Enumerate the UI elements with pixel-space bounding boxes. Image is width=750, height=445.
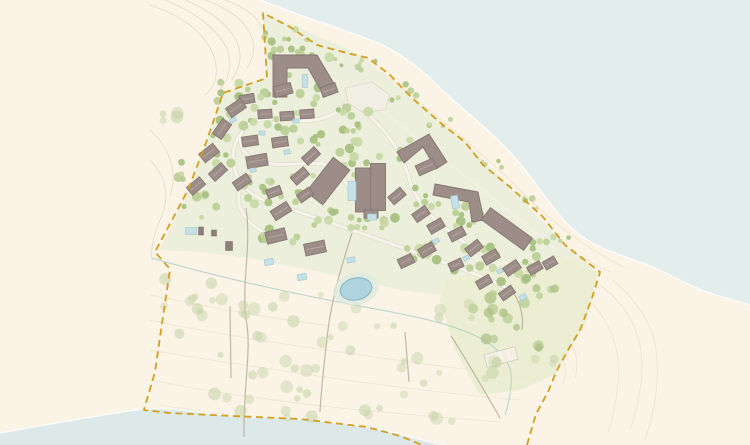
tree: [329, 208, 337, 216]
tree: [238, 309, 247, 318]
villa-roof-ridge: [260, 114, 270, 115]
tree: [345, 345, 355, 355]
tree: [464, 299, 475, 310]
tree: [413, 92, 419, 98]
tree: [532, 252, 541, 261]
tree: [265, 178, 271, 184]
tree: [313, 134, 319, 140]
tree: [289, 238, 296, 245]
tree: [297, 138, 304, 145]
tree: [250, 199, 259, 208]
swimming-pool: [347, 257, 356, 263]
tree: [292, 198, 299, 205]
tree: [536, 292, 543, 299]
tree: [311, 222, 317, 228]
tree: [160, 110, 167, 117]
tree: [268, 37, 276, 45]
tree: [313, 94, 321, 102]
tree: [359, 404, 371, 416]
tree: [459, 212, 465, 218]
tree: [376, 153, 383, 160]
tree: [363, 107, 373, 117]
tree: [513, 324, 520, 331]
tree: [475, 261, 484, 270]
swimming-pool: [293, 119, 299, 123]
tree: [566, 235, 571, 240]
tree: [279, 291, 290, 302]
tree: [430, 412, 443, 425]
tree: [256, 332, 267, 343]
swimming-pool: [303, 75, 308, 88]
tree: [344, 128, 349, 133]
swimming-pool: [284, 150, 291, 155]
tree: [282, 37, 287, 42]
tree: [296, 89, 305, 98]
tree: [420, 379, 428, 387]
tree: [160, 117, 167, 124]
tree: [558, 239, 562, 243]
tree: [335, 148, 344, 157]
tree: [551, 284, 559, 292]
tree: [316, 142, 321, 147]
tree: [347, 224, 354, 231]
tree: [496, 277, 505, 286]
hotel-building: [371, 164, 386, 211]
tree: [349, 152, 359, 162]
swimming-pool: [259, 131, 265, 135]
tree: [532, 284, 540, 292]
tree: [333, 57, 337, 61]
tree: [466, 264, 474, 272]
tree: [280, 380, 293, 393]
tree: [239, 121, 249, 131]
tree: [188, 294, 197, 303]
villa-roof-ridge: [282, 116, 292, 117]
tree: [286, 37, 291, 42]
tree: [217, 79, 224, 86]
tree: [280, 355, 292, 367]
swimming-pool: [186, 228, 197, 235]
tree: [492, 357, 503, 368]
tree: [300, 364, 313, 377]
tree: [390, 322, 397, 329]
tree: [354, 121, 360, 127]
tree: [413, 201, 419, 207]
tree: [208, 388, 221, 401]
tree: [374, 323, 380, 329]
tree: [171, 111, 184, 124]
tree: [288, 46, 295, 53]
tree: [339, 63, 343, 67]
tree: [496, 159, 500, 163]
tree: [499, 165, 504, 170]
tree: [531, 355, 540, 364]
tree: [427, 122, 432, 127]
tree: [448, 418, 456, 426]
tree: [268, 302, 278, 312]
tree: [432, 255, 442, 265]
tree: [281, 406, 291, 416]
tree: [490, 335, 498, 343]
tree: [529, 195, 536, 202]
tree: [212, 203, 220, 211]
swimming-pool: [348, 182, 356, 201]
tree: [310, 173, 316, 179]
tree: [296, 386, 303, 393]
tree: [202, 192, 209, 199]
tree: [406, 137, 413, 144]
site-plan: [0, 0, 750, 445]
tree: [291, 364, 299, 372]
tree: [328, 334, 334, 340]
tree: [222, 393, 231, 402]
tree: [380, 218, 389, 227]
tree: [294, 395, 300, 401]
tree: [178, 159, 185, 166]
tree: [354, 224, 360, 230]
tree: [396, 95, 401, 100]
swimming-pool: [250, 168, 257, 173]
tree: [209, 297, 216, 304]
tree: [363, 159, 370, 166]
tree: [499, 308, 508, 317]
tree: [274, 123, 282, 131]
tree: [317, 337, 329, 349]
tree: [436, 370, 442, 376]
tree: [357, 218, 362, 223]
tree: [272, 100, 277, 105]
tree: [390, 213, 400, 223]
shed-building: [199, 227, 204, 235]
swimming-pool: [297, 273, 307, 280]
tree: [536, 238, 543, 245]
tree: [401, 358, 407, 364]
tree: [351, 128, 357, 134]
tree: [376, 405, 383, 412]
tree: [400, 391, 408, 399]
swimming-pool: [264, 258, 274, 265]
tree: [263, 120, 271, 128]
tree: [217, 352, 223, 358]
tree: [248, 370, 257, 379]
tree: [411, 352, 423, 364]
tree: [317, 130, 325, 138]
tree: [404, 245, 410, 251]
tree: [423, 193, 428, 198]
tree: [303, 389, 312, 398]
tree: [206, 278, 217, 289]
tree: [434, 304, 446, 316]
tree: [216, 293, 228, 305]
tree: [484, 308, 494, 318]
tree: [549, 360, 556, 367]
tree: [310, 100, 317, 107]
tree: [468, 315, 474, 321]
tree: [226, 158, 235, 167]
tree: [489, 290, 497, 298]
tree: [403, 81, 409, 87]
swimming-pool: [368, 214, 377, 220]
tree: [257, 367, 268, 378]
tree: [244, 394, 254, 404]
tree: [199, 215, 204, 220]
tree: [324, 216, 333, 225]
tree: [543, 239, 550, 246]
tree: [362, 225, 367, 230]
tree: [182, 204, 187, 209]
tree: [271, 46, 278, 53]
shed-building: [212, 230, 217, 236]
tree: [174, 329, 184, 339]
tree: [522, 274, 531, 283]
tree: [287, 315, 299, 327]
tree: [277, 45, 285, 53]
tree: [340, 109, 347, 116]
tree: [347, 112, 355, 120]
tree: [358, 67, 364, 73]
tree: [223, 152, 229, 158]
tree: [245, 87, 251, 93]
tree: [489, 264, 497, 272]
tree: [530, 245, 536, 251]
tree: [299, 46, 305, 52]
tree: [448, 117, 453, 122]
tree: [350, 137, 358, 145]
tree: [486, 366, 498, 378]
tree: [197, 307, 204, 314]
tree: [535, 344, 543, 352]
tree: [550, 234, 557, 241]
tree: [250, 118, 258, 126]
site-plan-map: [0, 0, 750, 445]
hotel-building: [356, 168, 373, 212]
tree: [412, 185, 419, 192]
tree: [338, 321, 348, 331]
tree: [345, 144, 355, 154]
tree: [294, 110, 300, 116]
villa-roof-ridge: [302, 114, 312, 115]
tree: [273, 116, 279, 122]
tree: [389, 97, 394, 102]
tree: [217, 89, 224, 96]
tree: [289, 125, 297, 133]
tree: [318, 292, 324, 298]
tree: [435, 201, 441, 207]
tree: [466, 222, 472, 228]
tree: [522, 259, 528, 265]
tree: [180, 176, 186, 182]
tree: [452, 209, 459, 216]
tree: [428, 203, 435, 210]
tree: [257, 94, 264, 101]
shed-building: [226, 242, 233, 251]
tree: [359, 58, 364, 63]
tree: [264, 198, 272, 206]
tree: [348, 214, 355, 221]
tree: [311, 364, 320, 373]
tree: [325, 53, 335, 63]
